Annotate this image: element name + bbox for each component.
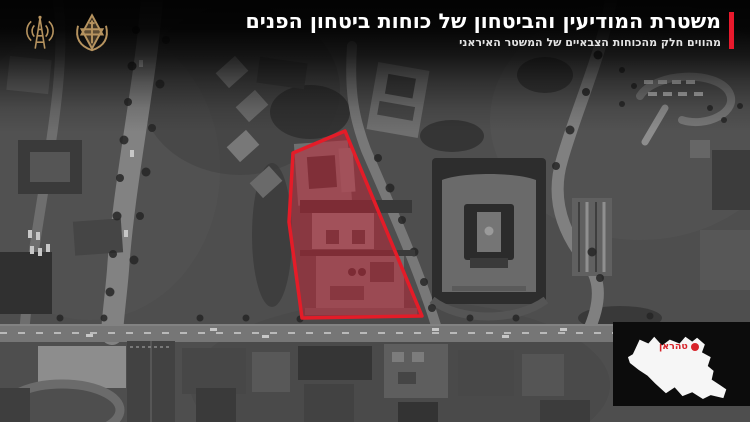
- infographic: משטרת המודיעין והביטחון של כוחות ביטחון …: [0, 0, 750, 422]
- headline: משטרת המודיעין והביטחון של כוחות ביטחון …: [246, 10, 721, 34]
- header: משטרת המודיעין והביטחון של כוחות ביטחון …: [246, 10, 734, 49]
- header-text: משטרת המודיעין והביטחון של כוחות ביטחון …: [246, 10, 721, 49]
- accent-bar: [729, 12, 734, 49]
- tehran-label: טהראן: [659, 342, 688, 352]
- plaza-building: [432, 158, 546, 317]
- iran-map: [618, 327, 745, 401]
- tehran-marker: טהראן: [659, 342, 699, 352]
- subheadline: מהווים חלק מהכוחות הצבאיים של המשטר האיר…: [246, 36, 721, 49]
- signal-corps-emblem-icon: [24, 11, 56, 51]
- iran-inset: טהראן: [613, 322, 750, 406]
- idf-emblem-icon: [70, 10, 114, 52]
- emblem-group: [24, 10, 114, 52]
- tehran-marker-dot: [691, 343, 699, 351]
